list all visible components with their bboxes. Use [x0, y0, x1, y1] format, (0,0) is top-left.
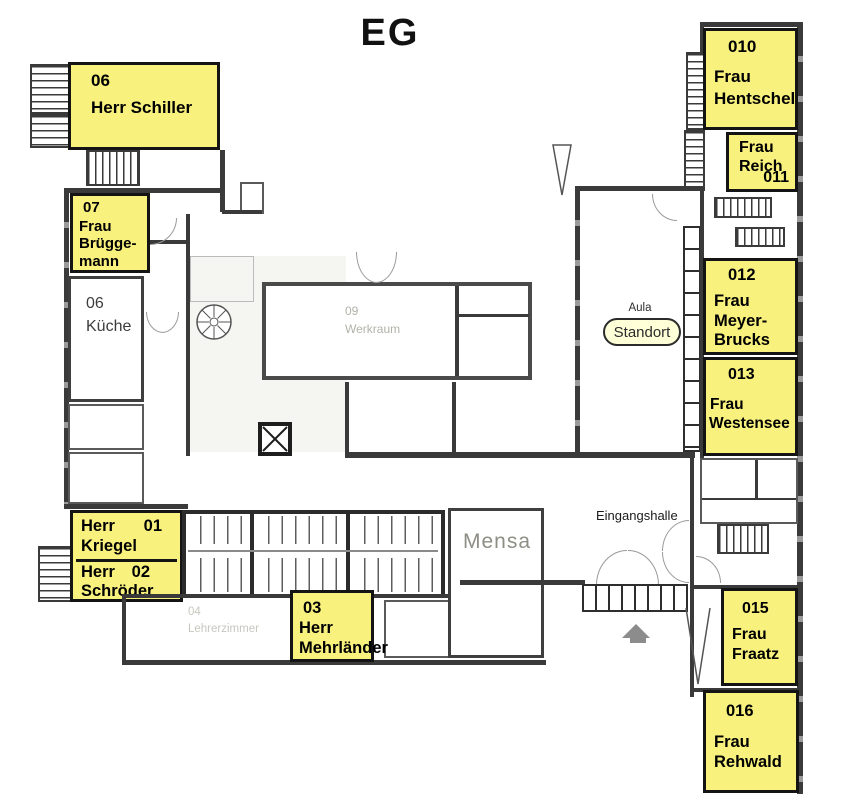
room-number: 02 [132, 563, 150, 583]
room-label: Westensee [706, 414, 795, 433]
location-marker[interactable]: Standort [603, 318, 681, 346]
stairs-icon [683, 226, 701, 452]
wall [702, 498, 796, 500]
room-kueche-label: 06 Küche [86, 292, 131, 338]
wall [76, 559, 177, 562]
elevator-icon [258, 422, 292, 456]
stairs-icon [717, 524, 769, 554]
door-arc-icon [696, 556, 721, 583]
room-label: Frau [706, 722, 796, 753]
room-lehrerzimmer-label: 04 Lehrerzimmer [188, 604, 259, 639]
room-label: Herr [81, 563, 115, 583]
room-label: mann [73, 253, 147, 271]
room [68, 452, 144, 504]
room-label: Frau [724, 619, 795, 645]
room [68, 404, 144, 450]
room-werkraum-label: 09 Werkraum [345, 302, 400, 338]
room-number: 09 [345, 302, 400, 320]
room-label: Brügge- [73, 235, 147, 253]
toilet-stalls [188, 516, 248, 544]
room-number: 01 [144, 517, 162, 537]
wall [122, 594, 126, 664]
room-westensee[interactable]: 013 Frau Westensee [703, 357, 798, 456]
room-label: Schröder [73, 582, 180, 602]
wall [459, 314, 529, 317]
room-number: 015 [724, 591, 795, 619]
room-label: Herr Schiller [71, 91, 217, 118]
stairs-icon [30, 64, 70, 114]
entrance-steps [582, 584, 688, 612]
room-kriegel-schroeder[interactable]: Herr 01 Kriegel Herr 02 Schröder [70, 510, 183, 602]
stairs-icon [86, 150, 140, 186]
door-arc-icon [162, 312, 179, 333]
ramp-icon [551, 143, 573, 199]
wall [345, 452, 695, 458]
room-number: 010 [706, 31, 795, 58]
stairs-icon [684, 130, 705, 188]
room-number: 012 [706, 261, 795, 286]
room [190, 256, 254, 302]
wall [188, 550, 438, 552]
room-row: Herr 01 [73, 513, 180, 537]
toilet-stalls [256, 516, 344, 544]
room-label: Herr [293, 619, 371, 639]
room-brueggemann[interactable]: 07 Frau Brügge- mann [70, 193, 150, 273]
room-aula-label: Aula [608, 302, 672, 314]
room-label: Hentschel [706, 88, 795, 110]
page-title: EG [330, 12, 450, 55]
room-label: Fraatz [724, 645, 795, 665]
wall [250, 514, 254, 594]
floor-plan: EG 06 Herr Schiller 07 Frau Brügge- mann… [0, 0, 853, 806]
room-number: 011 [763, 168, 789, 187]
room-number: 06 [71, 65, 217, 91]
wall [345, 382, 349, 456]
entrance-arrow-icon [622, 624, 650, 638]
entrance-arrow-icon [630, 638, 646, 643]
stairs-icon [30, 114, 70, 148]
room-schiller[interactable]: 06 Herr Schiller [68, 62, 220, 150]
wall [460, 580, 585, 585]
room-label: Frau [706, 58, 795, 88]
spiral-stairs-icon [194, 302, 234, 342]
room-number: 03 [293, 593, 371, 619]
room-rehwald[interactable]: 016 Frau Rehwald [703, 690, 799, 793]
door-arc-icon [596, 550, 627, 585]
room-meyerbrucks[interactable]: 012 Frau Meyer- Brucks [703, 258, 798, 355]
wall [222, 210, 262, 214]
door-arc-icon [146, 312, 163, 333]
wall [455, 286, 459, 376]
wall [64, 504, 188, 509]
room-number: 013 [706, 360, 795, 385]
room-eingangshalle-label: Eingangshalle [596, 508, 678, 523]
door-arc-icon [662, 520, 689, 551]
wall [220, 150, 225, 212]
room-label: Kriegel [73, 537, 180, 557]
toilet-stalls [352, 516, 438, 544]
door-arc-icon [376, 252, 397, 283]
door-arc-icon [628, 550, 659, 585]
toilet-stalls [188, 558, 248, 592]
stairs-icon [735, 227, 785, 247]
room-label: Frau [706, 385, 795, 414]
room-label: Brucks [706, 331, 795, 351]
room-number: 016 [706, 693, 796, 722]
toilet-stalls [256, 558, 344, 592]
room-label: Mehrländer [293, 639, 371, 659]
room-label: Lehrerzimmer [188, 621, 259, 638]
room [700, 458, 798, 524]
door-arc-icon [356, 252, 377, 283]
wall [452, 382, 456, 456]
wall [755, 460, 758, 498]
toilet-stalls [352, 558, 438, 592]
room-number: 07 [73, 196, 147, 217]
wall [346, 514, 350, 594]
wall [122, 594, 294, 598]
room-label: Frau [73, 217, 147, 236]
room-number: 06 [86, 292, 131, 315]
ramp-icon [684, 606, 712, 688]
room-label: Werkraum [345, 320, 400, 338]
room-label: Meyer- [706, 312, 795, 332]
room-label: Frau [706, 286, 795, 312]
door-arc-icon [652, 194, 677, 221]
wall [575, 186, 580, 456]
room-mensa-label: Mensa [455, 530, 539, 554]
room-label: Küche [86, 315, 131, 338]
wall [703, 22, 799, 27]
room-number: 04 [188, 604, 259, 621]
room-label: Rehwald [706, 752, 796, 773]
room-fraatz[interactable]: 015 Frau Fraatz [721, 588, 798, 686]
room-label: Frau [729, 135, 795, 157]
room-mehrlaender[interactable]: 03 Herr Mehrländer [290, 590, 374, 662]
stairs-icon [714, 197, 772, 218]
room-label: Herr [81, 517, 115, 537]
wc-block [182, 510, 445, 598]
room [384, 600, 454, 658]
door-arc-icon [662, 552, 689, 583]
room-reich[interactable]: Frau Reich 011 [726, 132, 798, 192]
room-hentschel[interactable]: 010 Frau Hentschel [703, 28, 798, 130]
